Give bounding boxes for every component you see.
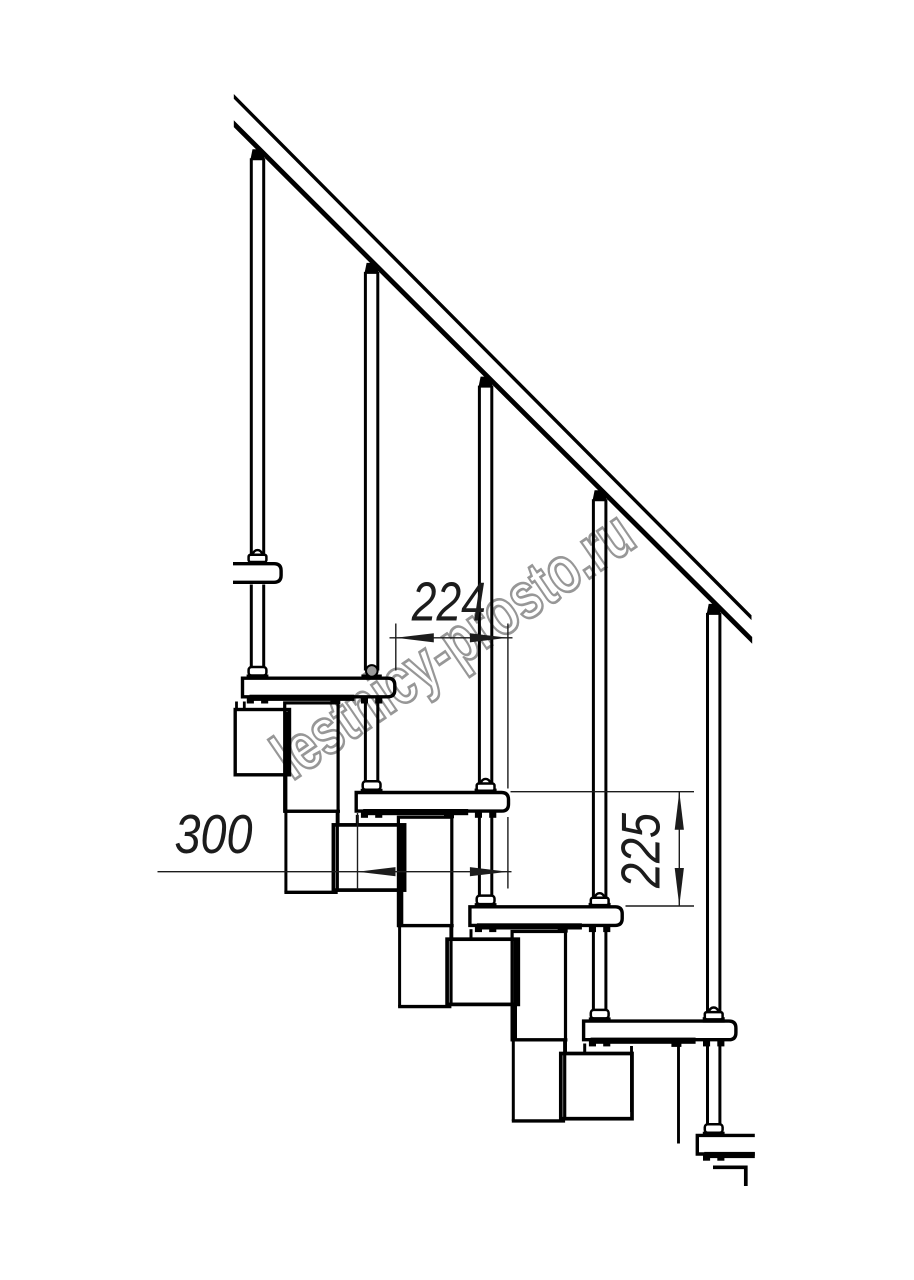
svg-text:300: 300	[175, 803, 253, 865]
svg-text:224: 224	[411, 571, 486, 633]
svg-text:225: 225	[610, 813, 672, 889]
svg-text:lestnicy-prosto.ru: lestnicy-prosto.ru	[258, 495, 647, 793]
